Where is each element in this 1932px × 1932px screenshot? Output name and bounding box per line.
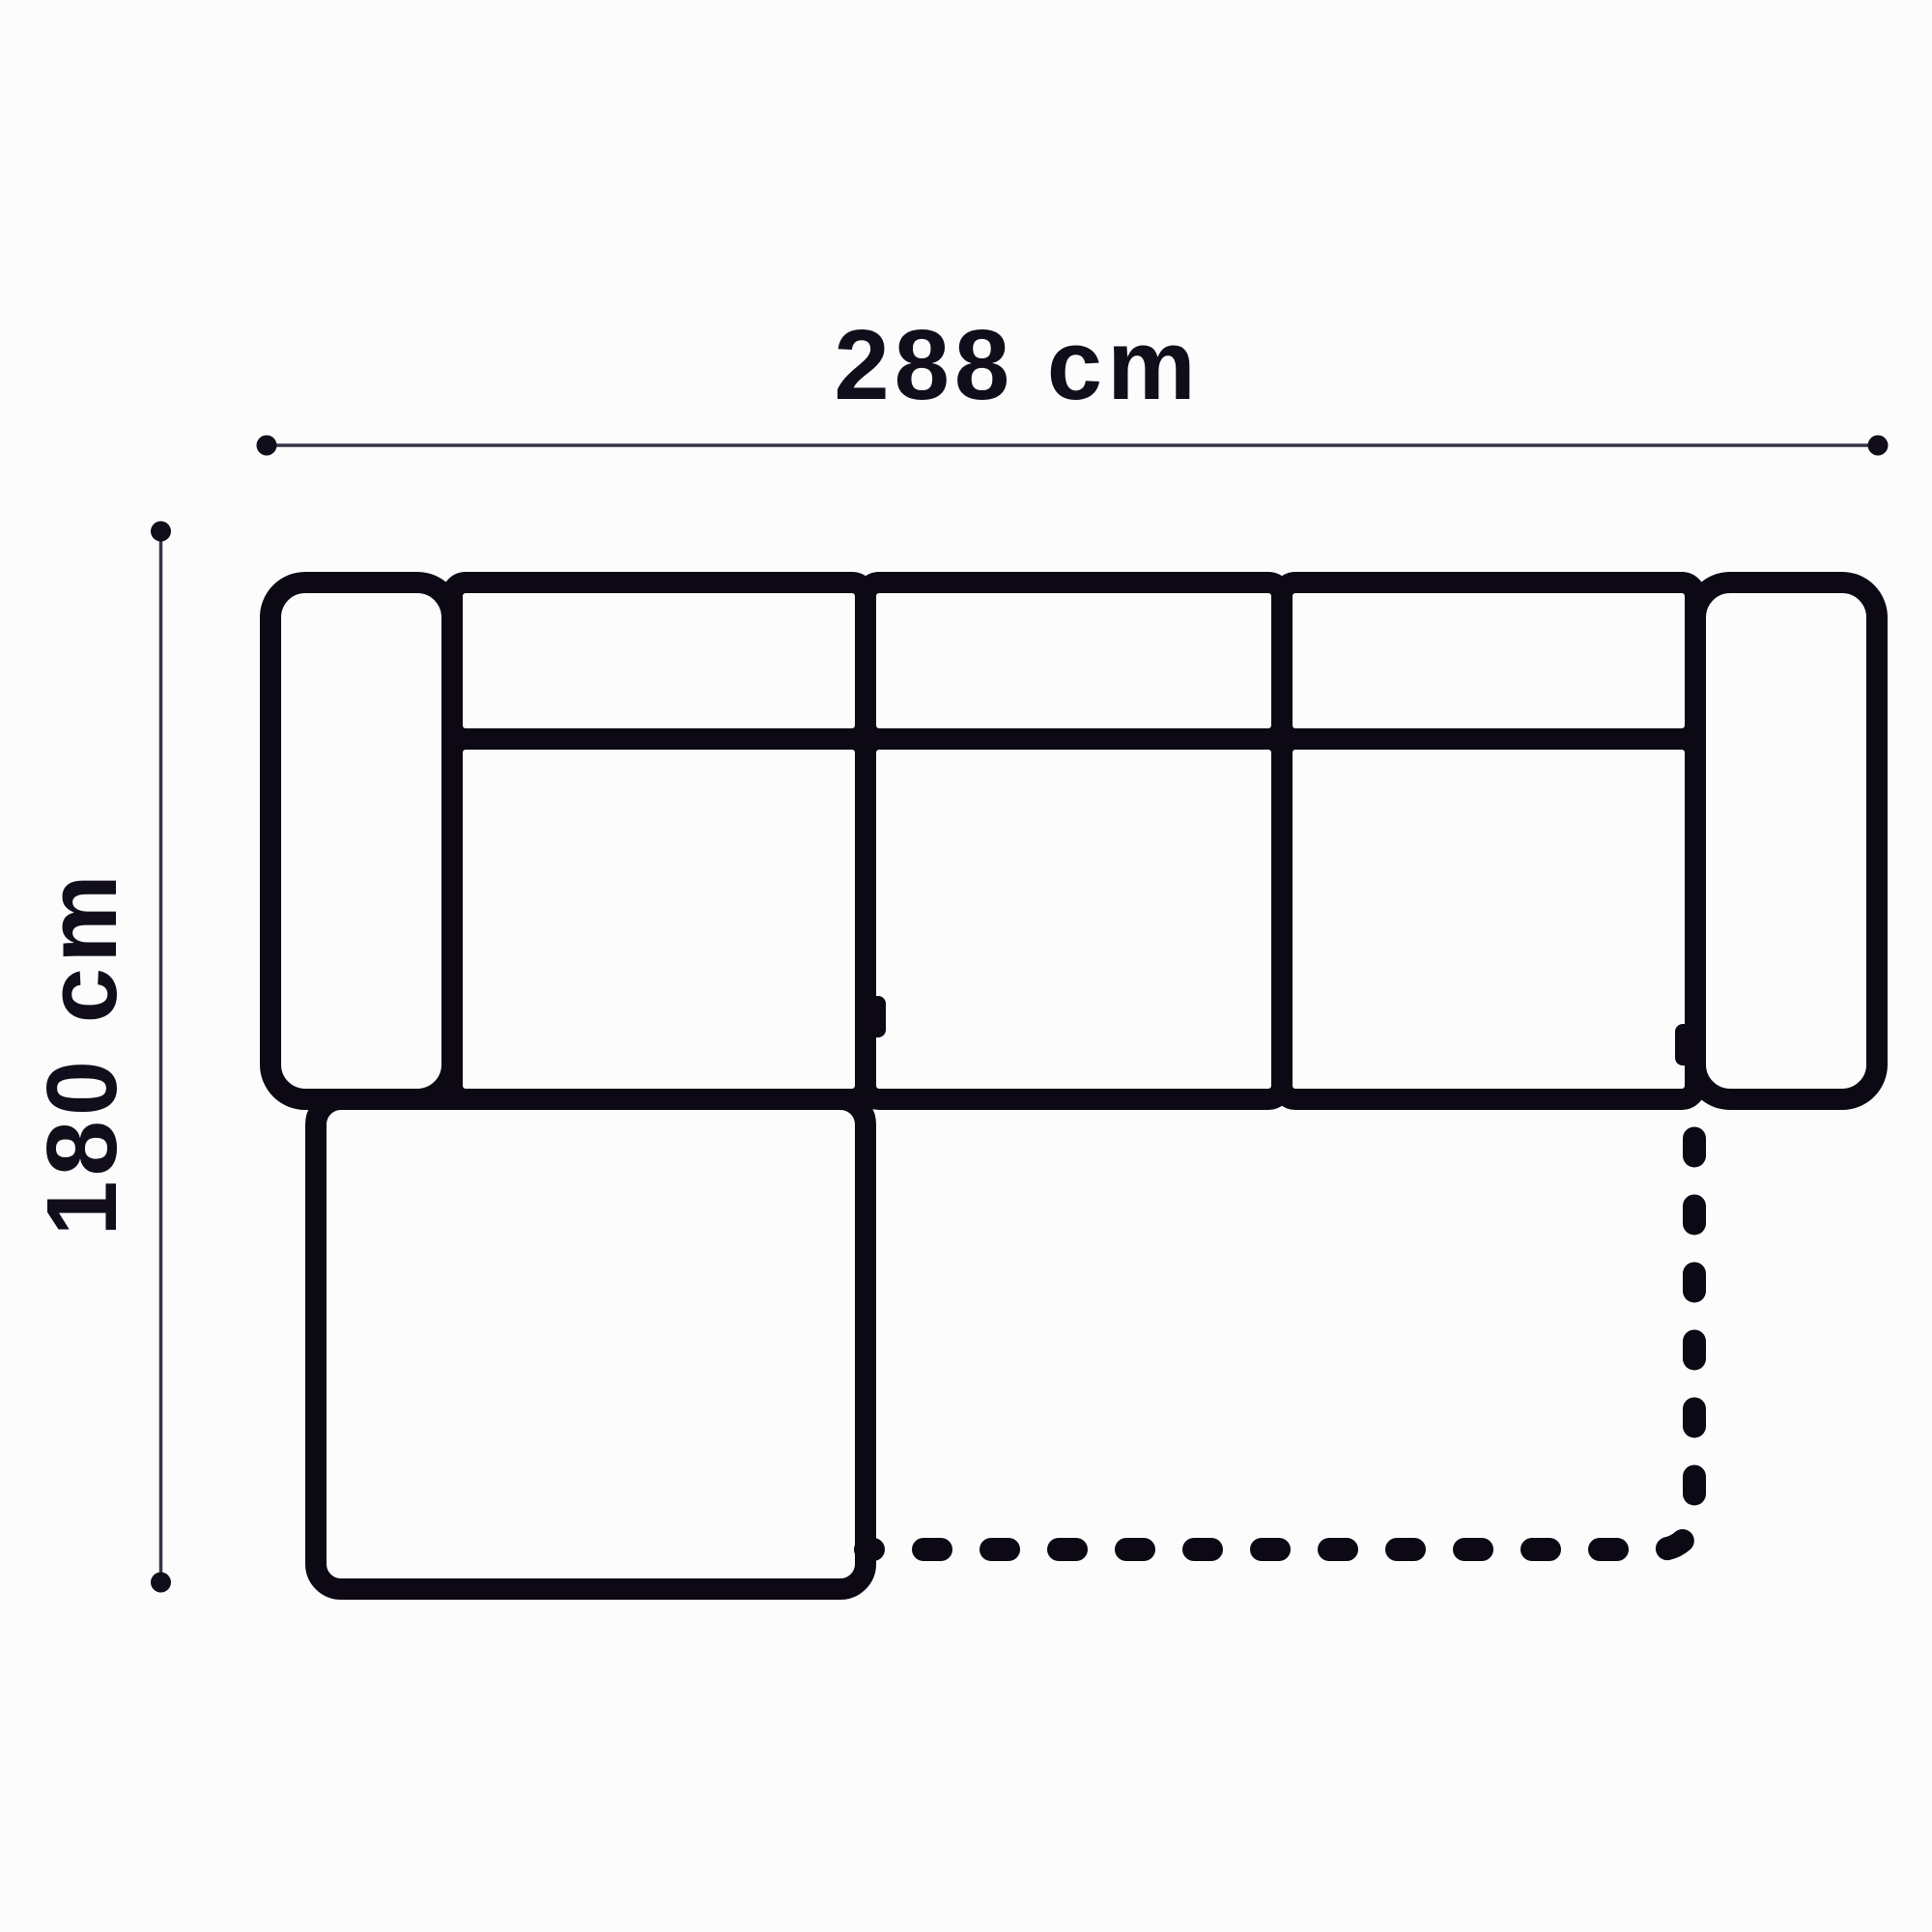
diagram-canvas: 288 cm 180 cm	[0, 0, 1932, 1932]
width-dim-end-dot	[1868, 436, 1889, 456]
height-dim-start-dot	[151, 522, 171, 542]
height-dim-end-dot	[151, 1573, 171, 1593]
width-dim-start-dot	[257, 436, 277, 456]
height-dimension-label: 180 cm	[26, 869, 137, 1236]
connector-clip-right-divider	[1675, 1024, 1691, 1065]
connector-clip-left-divider	[869, 996, 886, 1037]
diagram-background	[0, 0, 1932, 1932]
sofa-dimension-diagram: 288 cm 180 cm	[0, 0, 1932, 1932]
width-dimension-label: 288 cm	[834, 309, 1200, 420]
